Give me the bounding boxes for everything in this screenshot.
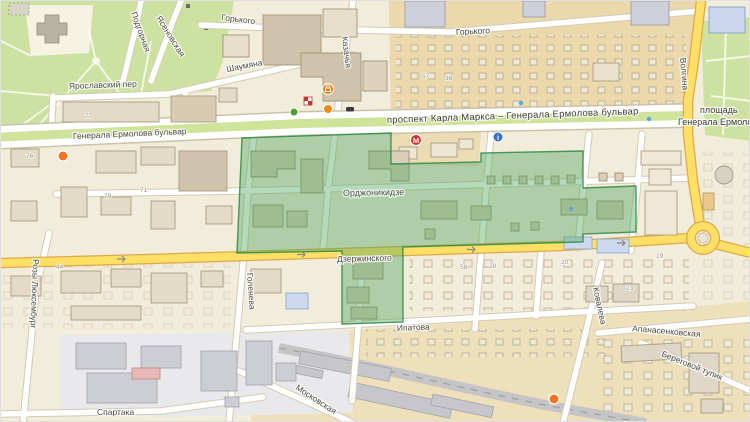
svg-text:76: 76	[26, 153, 34, 160]
blue-dot-poi-3	[569, 207, 573, 211]
svg-text:20: 20	[561, 259, 569, 266]
svg-text:36: 36	[445, 75, 453, 82]
map-canvas[interactable]: проспект Карла Маркса – Генерала Ермолов…	[0, 0, 750, 422]
label-square-line2: Генерала Ермоло	[678, 117, 750, 127]
svg-text:23: 23	[626, 285, 634, 292]
svg-text:i: i	[497, 133, 499, 142]
label-spartaka: Спартака	[97, 407, 134, 417]
svg-text:28: 28	[489, 263, 497, 270]
green-poi-marker[interactable]	[290, 108, 298, 116]
label-ipatova: Ипатова	[397, 322, 431, 333]
svg-text:44: 44	[56, 264, 64, 271]
orange-poi-marker-1[interactable]	[324, 105, 333, 114]
svg-text:77: 77	[85, 113, 93, 120]
store-marker[interactable]: М	[411, 135, 422, 146]
car-icon	[346, 107, 354, 112]
label-gorkogo-east: Горького	[456, 25, 491, 37]
svg-text:57: 57	[422, 73, 430, 80]
label-dzerzhinskogo: Дзержинского	[337, 253, 392, 264]
orange-poi-marker-3[interactable]	[549, 394, 559, 404]
orange-poi-marker-2[interactable]	[58, 151, 68, 161]
label-square-line1: площадь	[700, 105, 738, 115]
blue-dot-poi-2	[647, 117, 651, 121]
svg-text:М: М	[413, 136, 419, 145]
checker-marker[interactable]	[304, 97, 312, 105]
info-marker[interactable]: i	[493, 132, 503, 142]
svg-text:71: 71	[140, 187, 148, 194]
svg-text:58: 58	[460, 264, 468, 271]
blue-dot-poi-1	[519, 101, 523, 105]
label-ordzhonikidze: Орджоникидзе	[343, 187, 404, 198]
shop-bag-marker[interactable]	[323, 84, 334, 95]
svg-text:79: 79	[104, 193, 112, 200]
svg-text:19: 19	[656, 253, 664, 260]
